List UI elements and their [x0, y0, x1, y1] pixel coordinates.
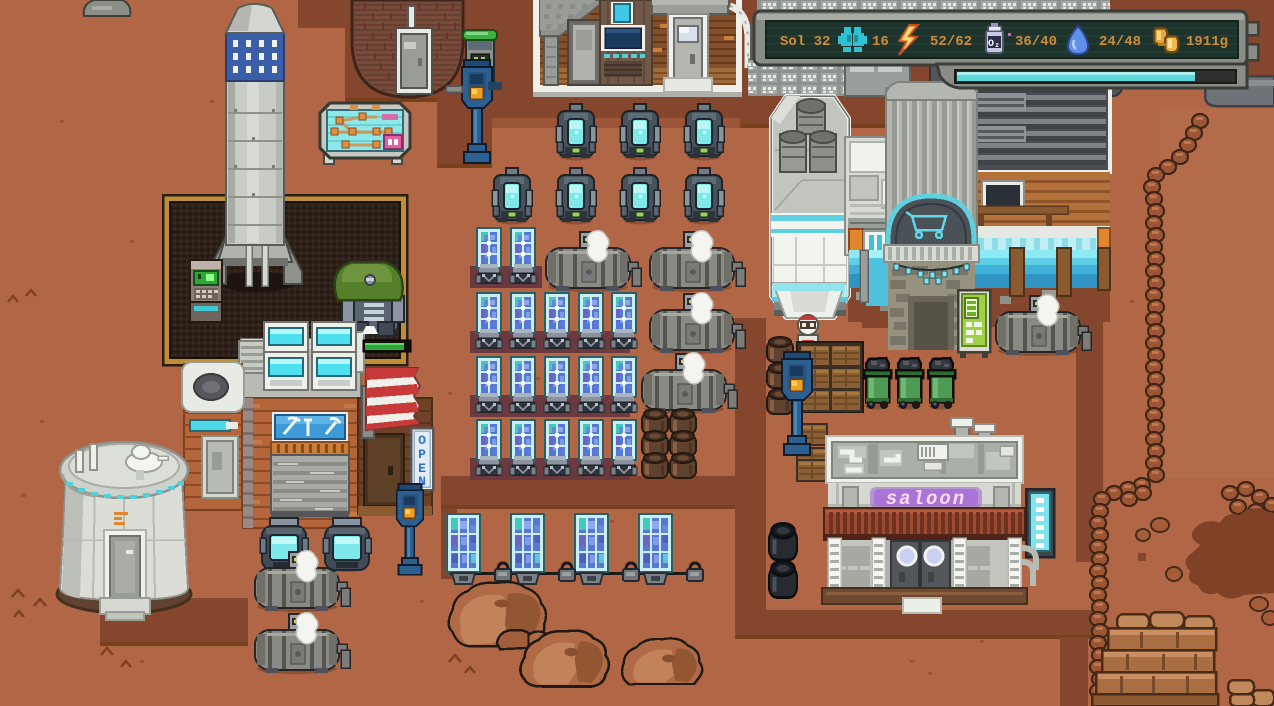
svg-text:O₂: O₂	[988, 39, 1000, 50]
svg-text:O: O	[418, 433, 426, 448]
svg-text:P: P	[418, 447, 426, 462]
svg-text:16: 16	[872, 34, 889, 50]
svg-text:Sol 32: Sol 32	[780, 34, 830, 50]
svg-text:1911g: 1911g	[1186, 34, 1228, 50]
svg-text:52/62: 52/62	[930, 34, 972, 50]
svg-text:24/48: 24/48	[1099, 34, 1141, 50]
svg-text:36/40: 36/40	[1015, 34, 1057, 50]
svg-text:saloon: saloon	[886, 488, 966, 510]
